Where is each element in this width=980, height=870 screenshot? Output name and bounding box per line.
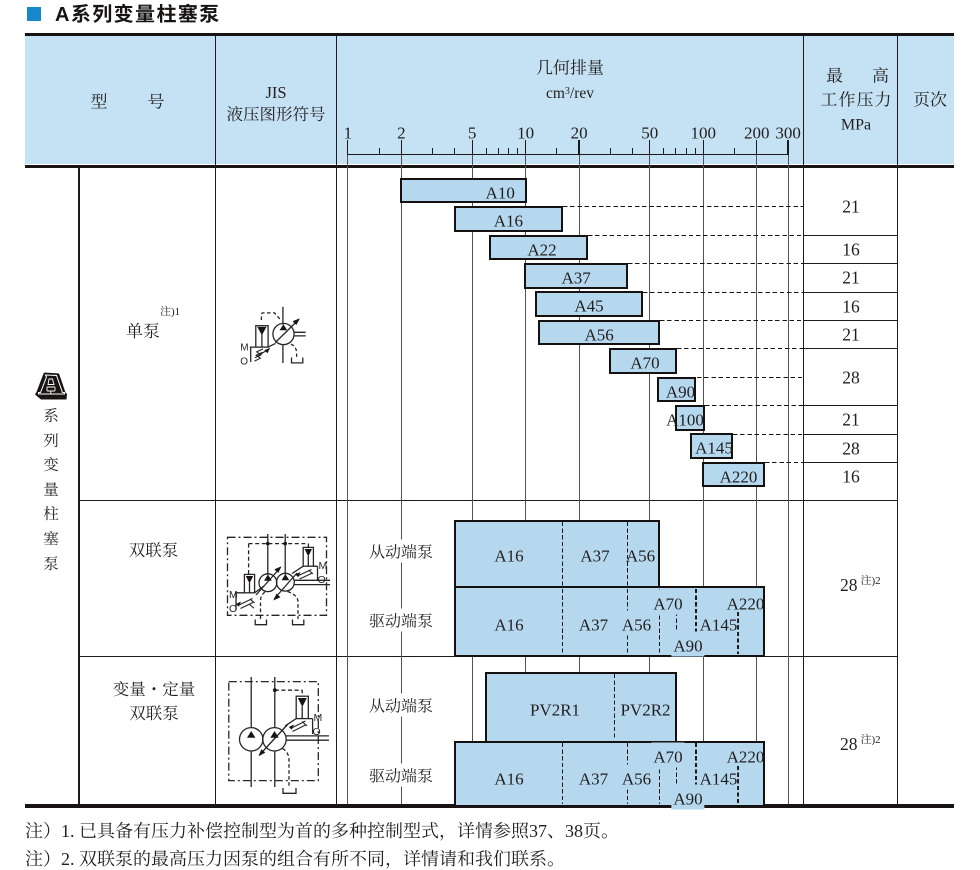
svg-text:M: M <box>229 589 238 601</box>
svg-text:O: O <box>313 726 321 738</box>
svg-text:M: M <box>314 712 323 724</box>
svg-text:M: M <box>240 343 248 354</box>
svg-text:O: O <box>240 357 248 368</box>
svg-text:O: O <box>318 574 326 586</box>
svg-text:M: M <box>319 560 328 572</box>
svg-text:O: O <box>229 603 237 615</box>
